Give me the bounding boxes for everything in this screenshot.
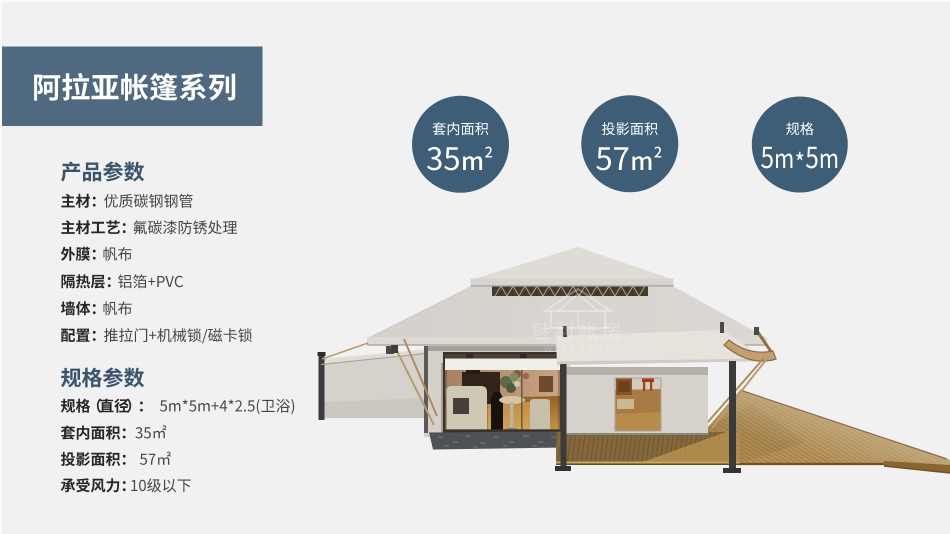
svg-text:WELL TENT: WELL TENT — [544, 344, 612, 354]
